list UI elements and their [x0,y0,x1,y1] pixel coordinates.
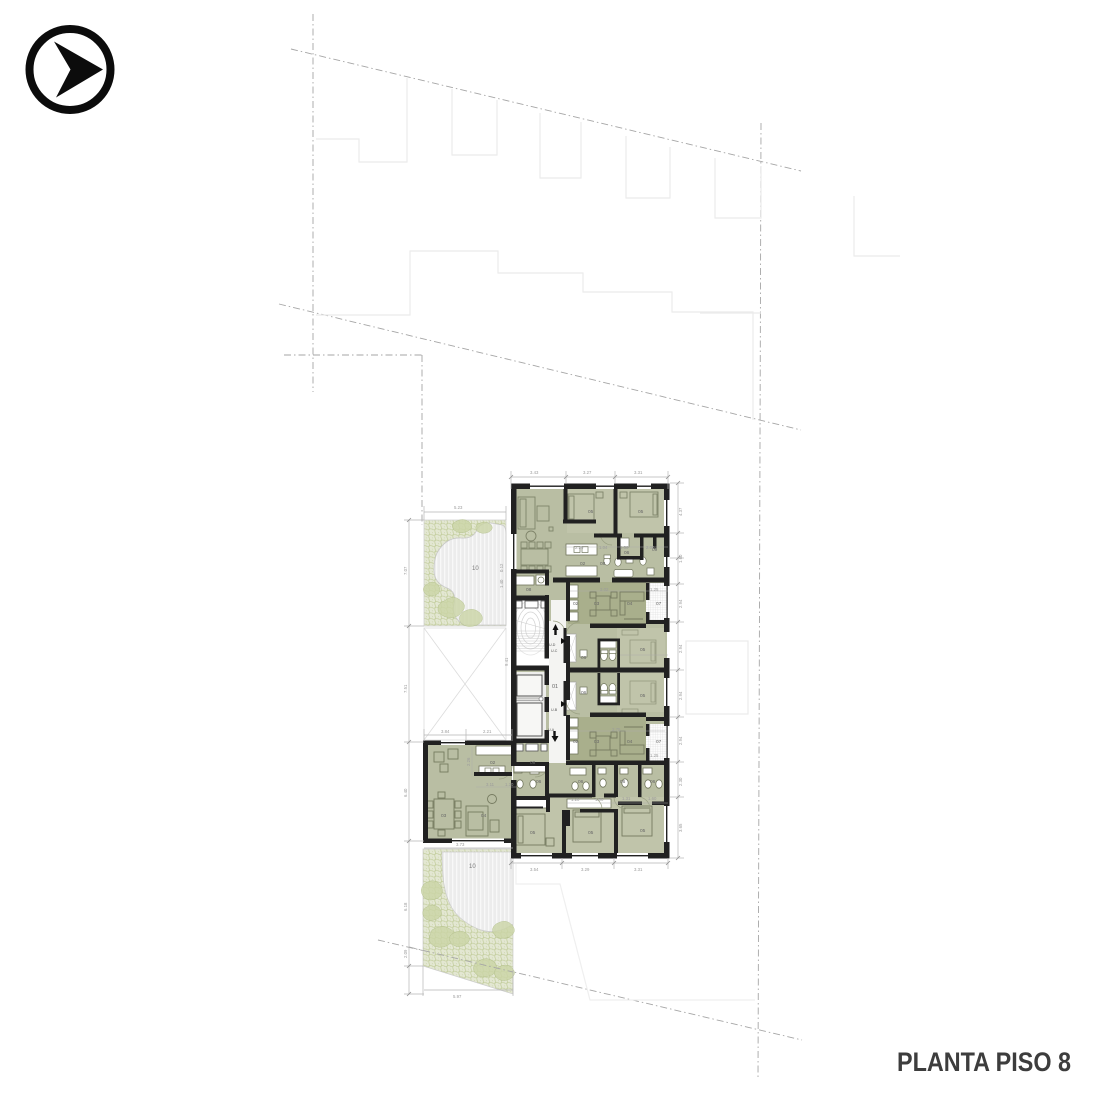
svg-text:3.02: 3.02 [600,587,609,592]
svg-text:5.23: 5.23 [454,505,463,510]
svg-text:03: 03 [441,813,447,819]
svg-text:2.26: 2.26 [466,757,471,766]
svg-text:1.00: 1.00 [595,797,604,802]
svg-text:7.51: 7.51 [403,684,408,693]
svg-text:05: 05 [640,828,646,834]
svg-text:1.25: 1.25 [650,587,659,592]
svg-text:02: 02 [580,561,586,567]
svg-text:3.27: 3.27 [583,470,592,475]
svg-text:3.43: 3.43 [530,470,539,475]
svg-text:06: 06 [536,779,542,785]
svg-text:3.84: 3.84 [441,729,450,734]
svg-text:04: 04 [627,601,633,607]
svg-text:1.25: 1.25 [650,753,659,758]
svg-text:1.04: 1.04 [599,545,608,550]
svg-text:U-C: U-C [551,649,558,653]
svg-text:PLANTA PISO 8: PLANTA PISO 8 [897,1047,1071,1077]
svg-text:1.31: 1.31 [622,796,631,801]
svg-text:1.40: 1.40 [499,579,504,588]
svg-text:U-A: U-A [548,728,555,732]
svg-text:0.12: 0.12 [499,563,504,572]
svg-text:06: 06 [581,690,587,696]
svg-text:2.21: 2.21 [483,729,492,734]
svg-text:06: 06 [650,779,656,785]
svg-text:08: 08 [526,587,532,593]
svg-text:3.65: 3.65 [678,823,683,832]
svg-text:10: 10 [472,566,479,572]
svg-text:05: 05 [640,693,646,699]
svg-text:7.07: 7.07 [403,566,408,575]
svg-text:06: 06 [624,550,630,556]
svg-text:05: 05 [588,509,594,515]
svg-text:08: 08 [600,561,606,567]
svg-text:05: 05 [530,830,536,836]
svg-text:03: 03 [594,601,600,607]
svg-text:3.73: 3.73 [456,842,465,847]
svg-text:2.94: 2.94 [678,644,683,653]
svg-text:3.29: 3.29 [581,867,590,872]
svg-text:4.37: 4.37 [678,507,683,516]
svg-text:3.31: 3.31 [634,867,643,872]
svg-text:06: 06 [620,779,626,785]
svg-text:9.41: 9.41 [504,657,509,666]
svg-text:U-D: U-D [549,643,556,647]
svg-text:U-B: U-B [551,708,558,712]
svg-text:2.30: 2.30 [678,777,683,786]
svg-text:3.75: 3.75 [612,727,621,732]
svg-text:01: 01 [552,684,558,690]
svg-text:1.60: 1.60 [678,554,683,563]
svg-text:02: 02 [490,760,496,766]
svg-text:3.31: 3.31 [634,470,643,475]
svg-text:1.60: 1.60 [648,796,657,801]
svg-text:1.30: 1.30 [505,782,514,787]
svg-text:07: 07 [656,601,662,607]
svg-text:05: 05 [588,830,594,836]
svg-text:06: 06 [578,779,584,785]
svg-text:04: 04 [481,813,487,819]
svg-text:2.00: 2.00 [646,545,655,550]
svg-text:08: 08 [530,760,536,766]
svg-text:02: 02 [573,739,579,745]
svg-text:02: 02 [573,601,579,607]
svg-text:05: 05 [638,509,644,515]
svg-text:10: 10 [469,864,476,870]
svg-text:04: 04 [627,739,633,745]
svg-text:2.94: 2.94 [678,736,683,745]
svg-text:1.50: 1.50 [620,545,629,550]
svg-text:05: 05 [640,647,646,653]
svg-text:1.20: 1.20 [571,797,580,802]
svg-text:2.09: 2.09 [403,949,408,958]
svg-text:06: 06 [581,655,587,661]
svg-text:3.54: 3.54 [530,867,539,872]
svg-text:6.40: 6.40 [403,788,408,797]
svg-text:07: 07 [656,739,662,745]
svg-text:2.94: 2.94 [678,599,683,608]
svg-text:2.94: 2.94 [678,691,683,700]
svg-text:03: 03 [594,739,600,745]
svg-text:3.11: 3.11 [486,782,495,787]
svg-text:5.97: 5.97 [453,994,462,999]
svg-text:6.18: 6.18 [403,902,408,911]
svg-text:2.29: 2.29 [575,545,584,550]
